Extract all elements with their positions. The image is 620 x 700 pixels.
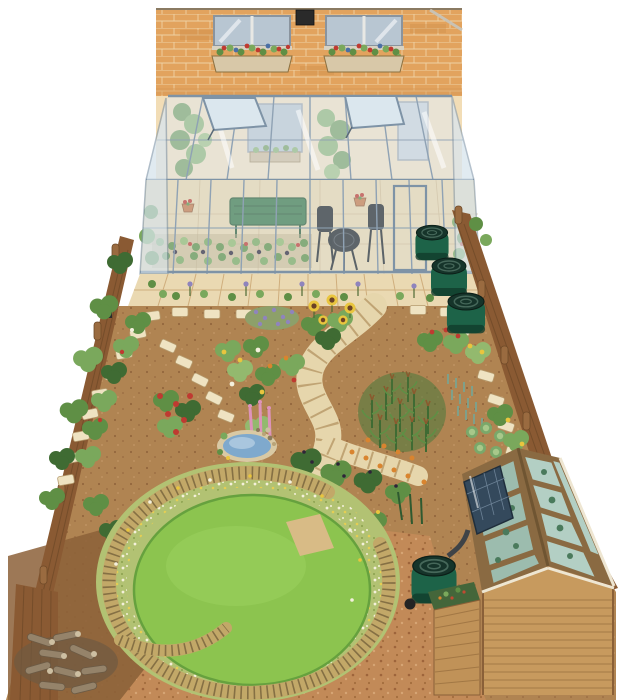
gable-end-left bbox=[140, 98, 168, 274]
water-butt-1 bbox=[415, 225, 448, 260]
fence-post bbox=[94, 322, 101, 340]
fence-post bbox=[455, 206, 462, 224]
patio-plant bbox=[148, 280, 156, 288]
water-butt-2 bbox=[431, 258, 467, 296]
patio-plant bbox=[159, 290, 167, 298]
lavender-bed bbox=[245, 306, 299, 330]
fence-post bbox=[40, 566, 47, 584]
fence-post bbox=[523, 412, 530, 430]
window-box-right bbox=[324, 44, 404, 72]
lawn-area bbox=[96, 462, 400, 700]
sweetcorn-patch bbox=[358, 371, 446, 452]
water-butt-3 bbox=[447, 293, 485, 333]
window-box-left bbox=[212, 44, 292, 72]
wall-light bbox=[296, 10, 314, 25]
spare-wheel bbox=[405, 599, 416, 610]
fence-post bbox=[501, 346, 508, 364]
lawn-highlight bbox=[166, 526, 306, 606]
compost-bin bbox=[428, 582, 480, 695]
garden-plan-illustration: Watercolour garden plan: brick house wit… bbox=[0, 0, 620, 700]
